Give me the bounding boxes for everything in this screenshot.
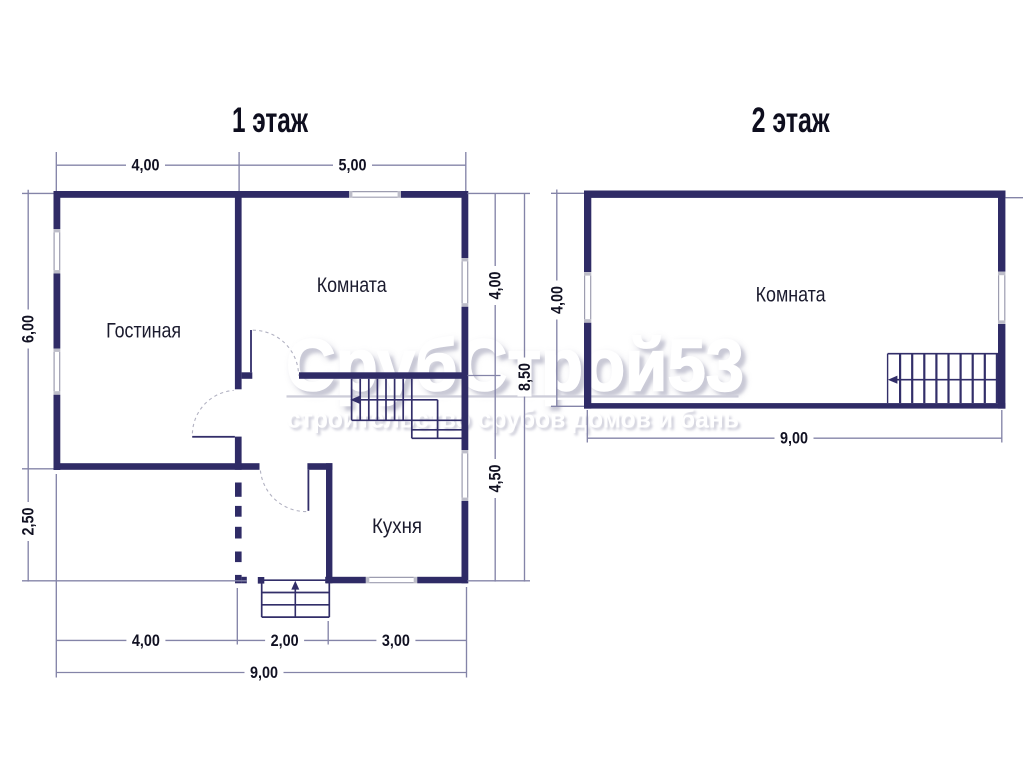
svg-text:6,00: 6,00: [19, 315, 38, 343]
svg-text:Гостиная: Гостиная: [106, 319, 181, 342]
svg-text:Комната: Комната: [317, 274, 387, 297]
svg-text:4,50: 4,50: [486, 465, 505, 493]
svg-text:8,50: 8,50: [515, 363, 534, 391]
svg-text:Кухня: Кухня: [372, 515, 422, 538]
svg-text:2 этаж: 2 этаж: [752, 101, 831, 140]
svg-text:3,00: 3,00: [382, 631, 410, 650]
svg-text:4,00: 4,00: [547, 286, 566, 314]
svg-text:4,00: 4,00: [132, 631, 160, 650]
svg-text:2,50: 2,50: [19, 508, 38, 536]
svg-text:9,00: 9,00: [780, 429, 808, 448]
svg-text:2,00: 2,00: [271, 631, 299, 650]
svg-text:9,00: 9,00: [250, 663, 278, 682]
svg-text:1 этаж: 1 этаж: [232, 101, 309, 140]
svg-text:4,00: 4,00: [486, 272, 505, 300]
svg-text:4,00: 4,00: [132, 156, 160, 175]
svg-text:Комната: Комната: [756, 284, 826, 307]
svg-text:5,00: 5,00: [339, 156, 367, 175]
